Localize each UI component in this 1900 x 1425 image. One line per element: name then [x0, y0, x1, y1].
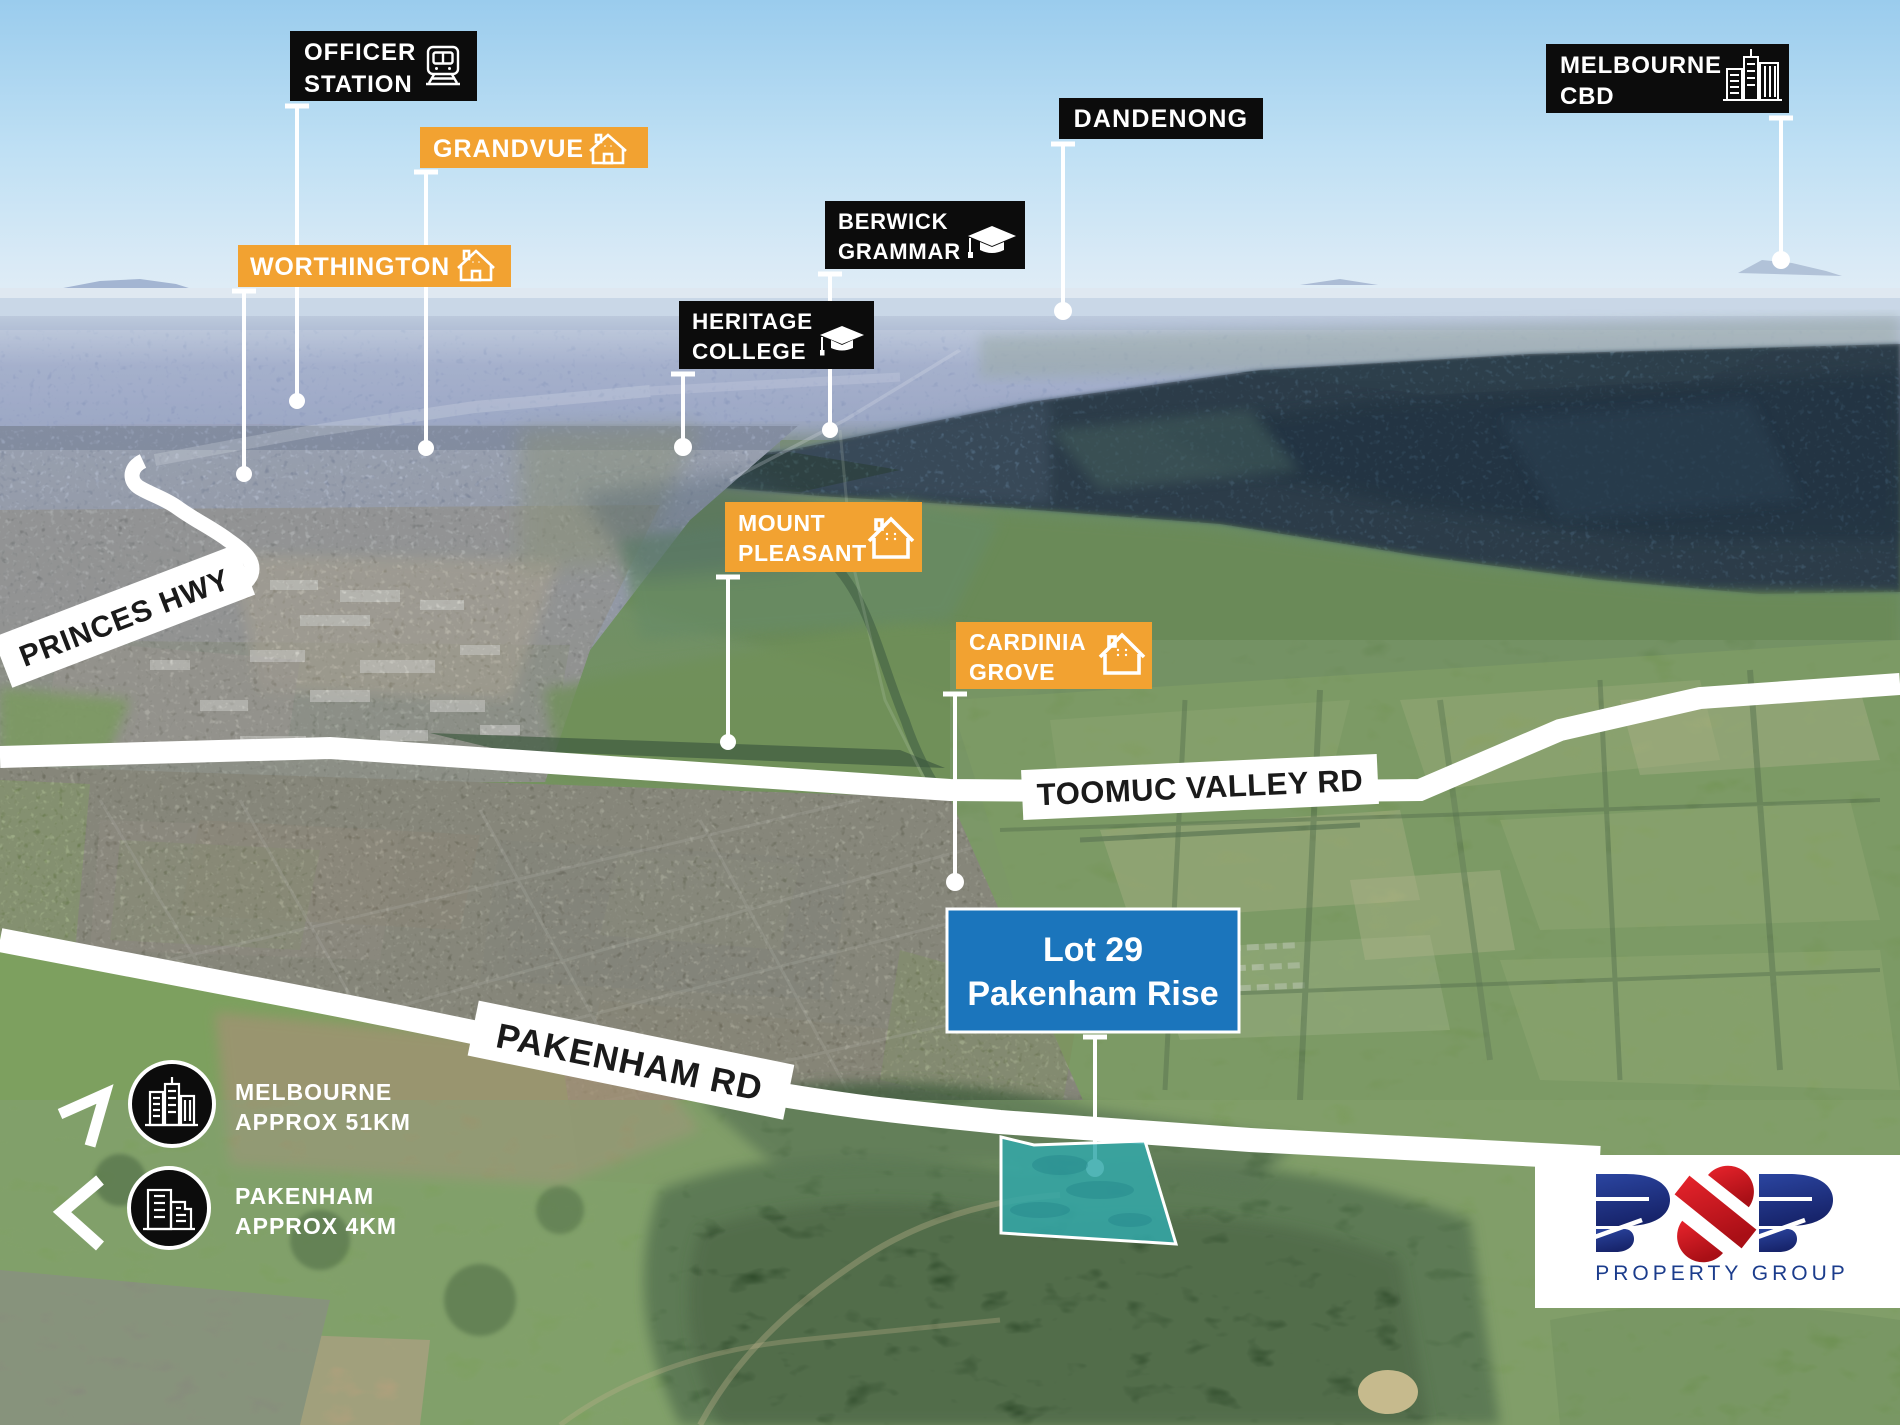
svg-text:CBD: CBD [1560, 83, 1614, 110]
svg-text:PLEASANT: PLEASANT [738, 540, 867, 566]
svg-text:MOUNT: MOUNT [738, 510, 825, 536]
svg-text:WORTHINGTON: WORTHINGTON [250, 253, 450, 281]
svg-text:COLLEGE: COLLEGE [692, 339, 806, 364]
svg-text:DANDENONG: DANDENONG [1074, 105, 1249, 133]
svg-text:OFFICER: OFFICER [304, 39, 416, 66]
svg-text:GRANDVUE: GRANDVUE [433, 135, 584, 163]
svg-text:MELBOURNE: MELBOURNE [1560, 52, 1722, 79]
svg-text:GRAMMAR: GRAMMAR [838, 239, 961, 264]
svg-text:STATION: STATION [304, 71, 413, 98]
svg-text:HERITAGE: HERITAGE [692, 309, 813, 334]
svg-text:MELBOURNE: MELBOURNE [235, 1079, 392, 1105]
svg-text:BERWICK: BERWICK [838, 209, 948, 234]
svg-text:APPROX 4KM: APPROX 4KM [235, 1213, 397, 1239]
svg-text:PROPERTY GROUP: PROPERTY GROUP [1595, 1262, 1849, 1285]
svg-text:PAKENHAM: PAKENHAM [235, 1183, 374, 1209]
svg-text:Lot 29: Lot 29 [1043, 931, 1143, 969]
svg-text:GROVE: GROVE [969, 659, 1055, 685]
svg-text:Pakenham Rise: Pakenham Rise [967, 975, 1218, 1013]
svg-text:APPROX 51KM: APPROX 51KM [235, 1109, 411, 1135]
svg-text:CARDINIA: CARDINIA [969, 629, 1086, 655]
